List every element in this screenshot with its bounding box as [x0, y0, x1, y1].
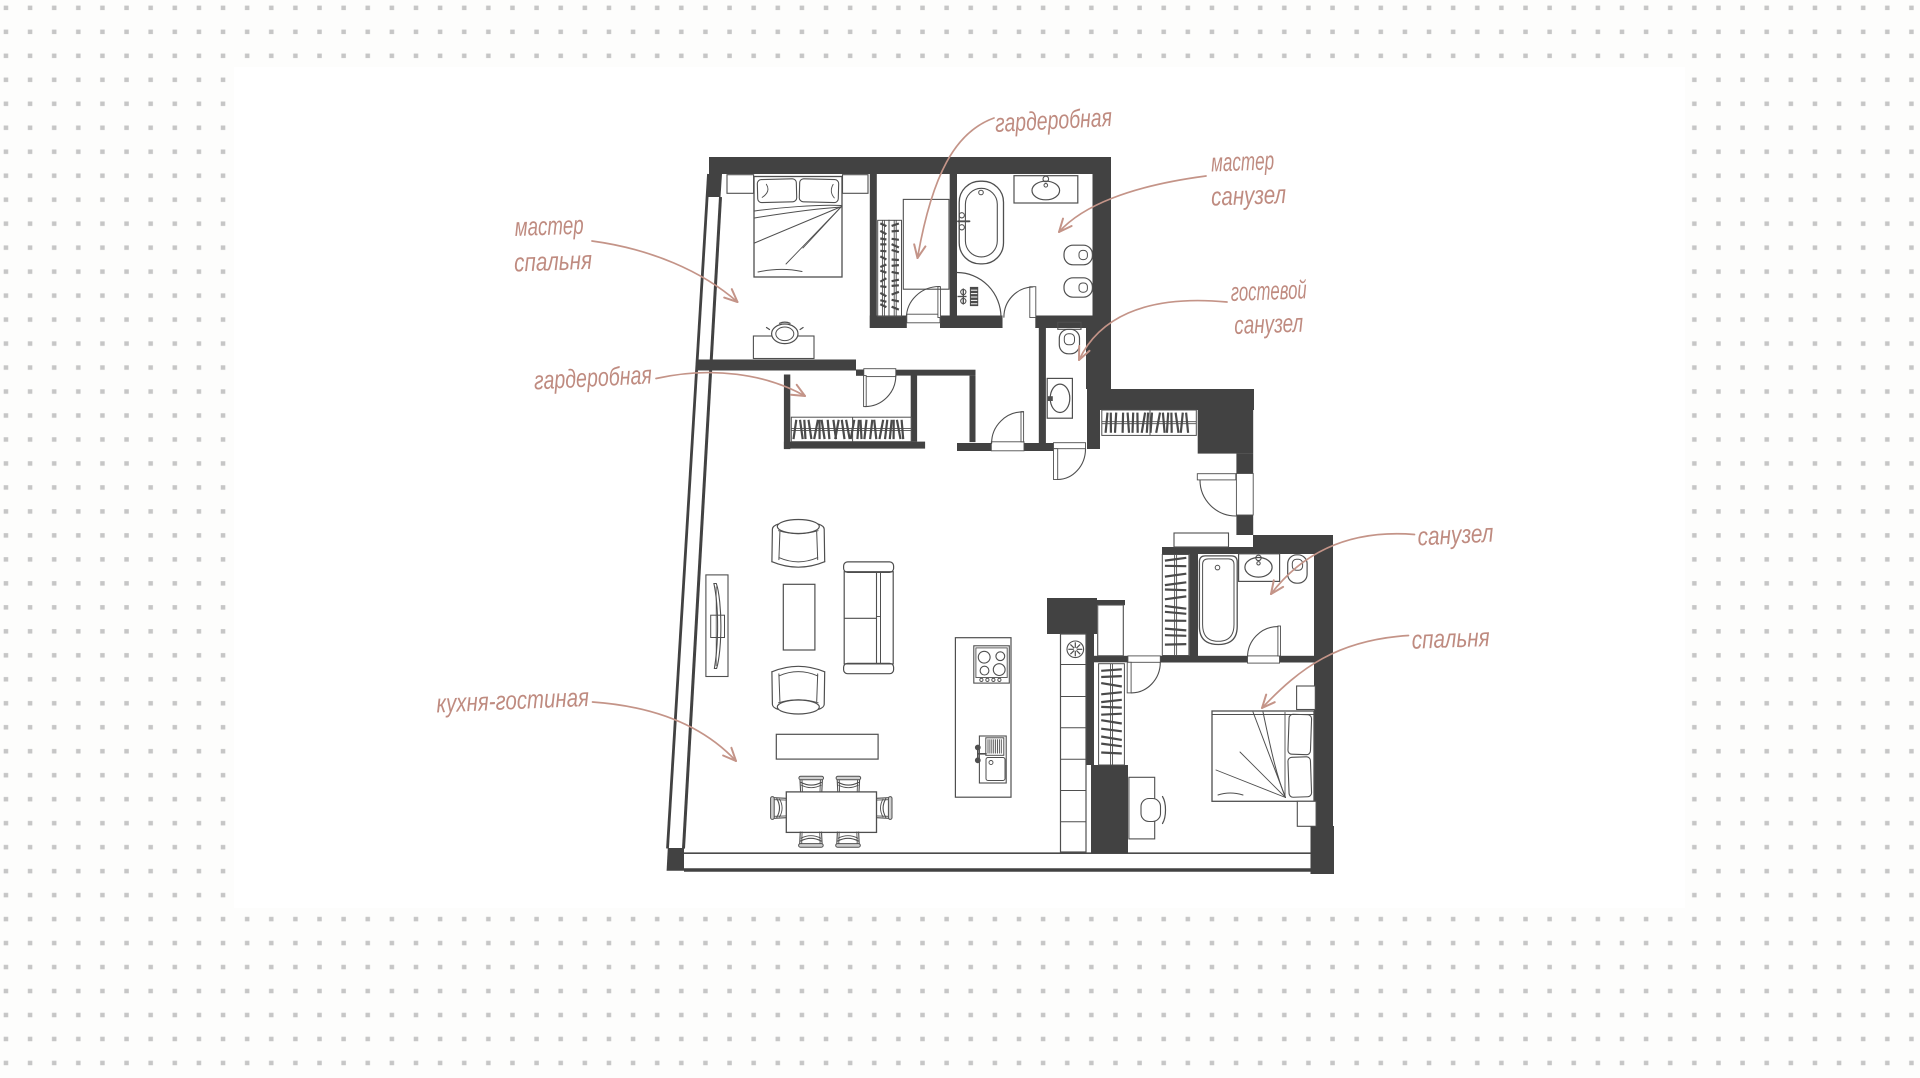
- svg-text:санузел: санузел: [1417, 518, 1495, 552]
- svg-text:спальня: спальня: [514, 245, 593, 278]
- svg-text:санузел: санузел: [1211, 179, 1287, 212]
- svg-text:мастер: мастер: [1211, 145, 1275, 177]
- svg-text:санузел: санузел: [1234, 308, 1304, 340]
- svg-text:гардеробная: гардеробная: [533, 359, 652, 395]
- svg-text:гардеробная: гардеробная: [994, 102, 1112, 138]
- svg-text:спальня: спальня: [1411, 622, 1490, 655]
- svg-text:мастер: мастер: [514, 210, 584, 242]
- svg-text:гостевой: гостевой: [1230, 274, 1307, 307]
